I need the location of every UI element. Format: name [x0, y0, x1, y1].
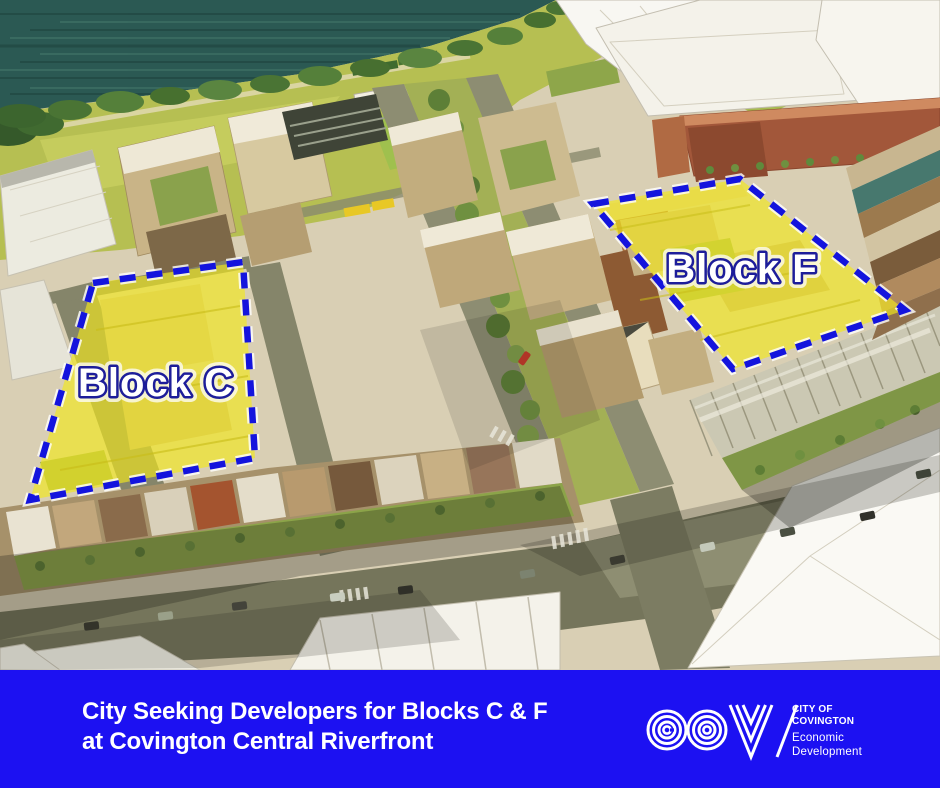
logo-dept-line-2: Development [792, 746, 863, 758]
logo-org-line-1: CITY OF [792, 704, 833, 715]
cov-monogram-icon [648, 705, 797, 757]
headline: City Seeking Developers for Blocks C & F… [82, 697, 547, 757]
logo-org-line-2: COVINGTON [792, 716, 854, 727]
cov-logo: CITY OF COVINGTON Economic Development [645, 696, 895, 768]
block-f-label: Block F [666, 247, 817, 291]
headline-line-2: at Covington Central Riverfront [82, 727, 547, 757]
headline-line-1: City Seeking Developers for Blocks C & F [82, 697, 547, 727]
aerial-rendering: Block C Block C Block F Block F [0, 0, 940, 670]
logo-dept-line-1: Economic [792, 732, 844, 744]
block-c-label: Block C [78, 361, 234, 405]
poster: Block C Block C Block F Block F City See… [0, 0, 940, 788]
footer-banner: City Seeking Developers for Blocks C & F… [0, 670, 940, 788]
